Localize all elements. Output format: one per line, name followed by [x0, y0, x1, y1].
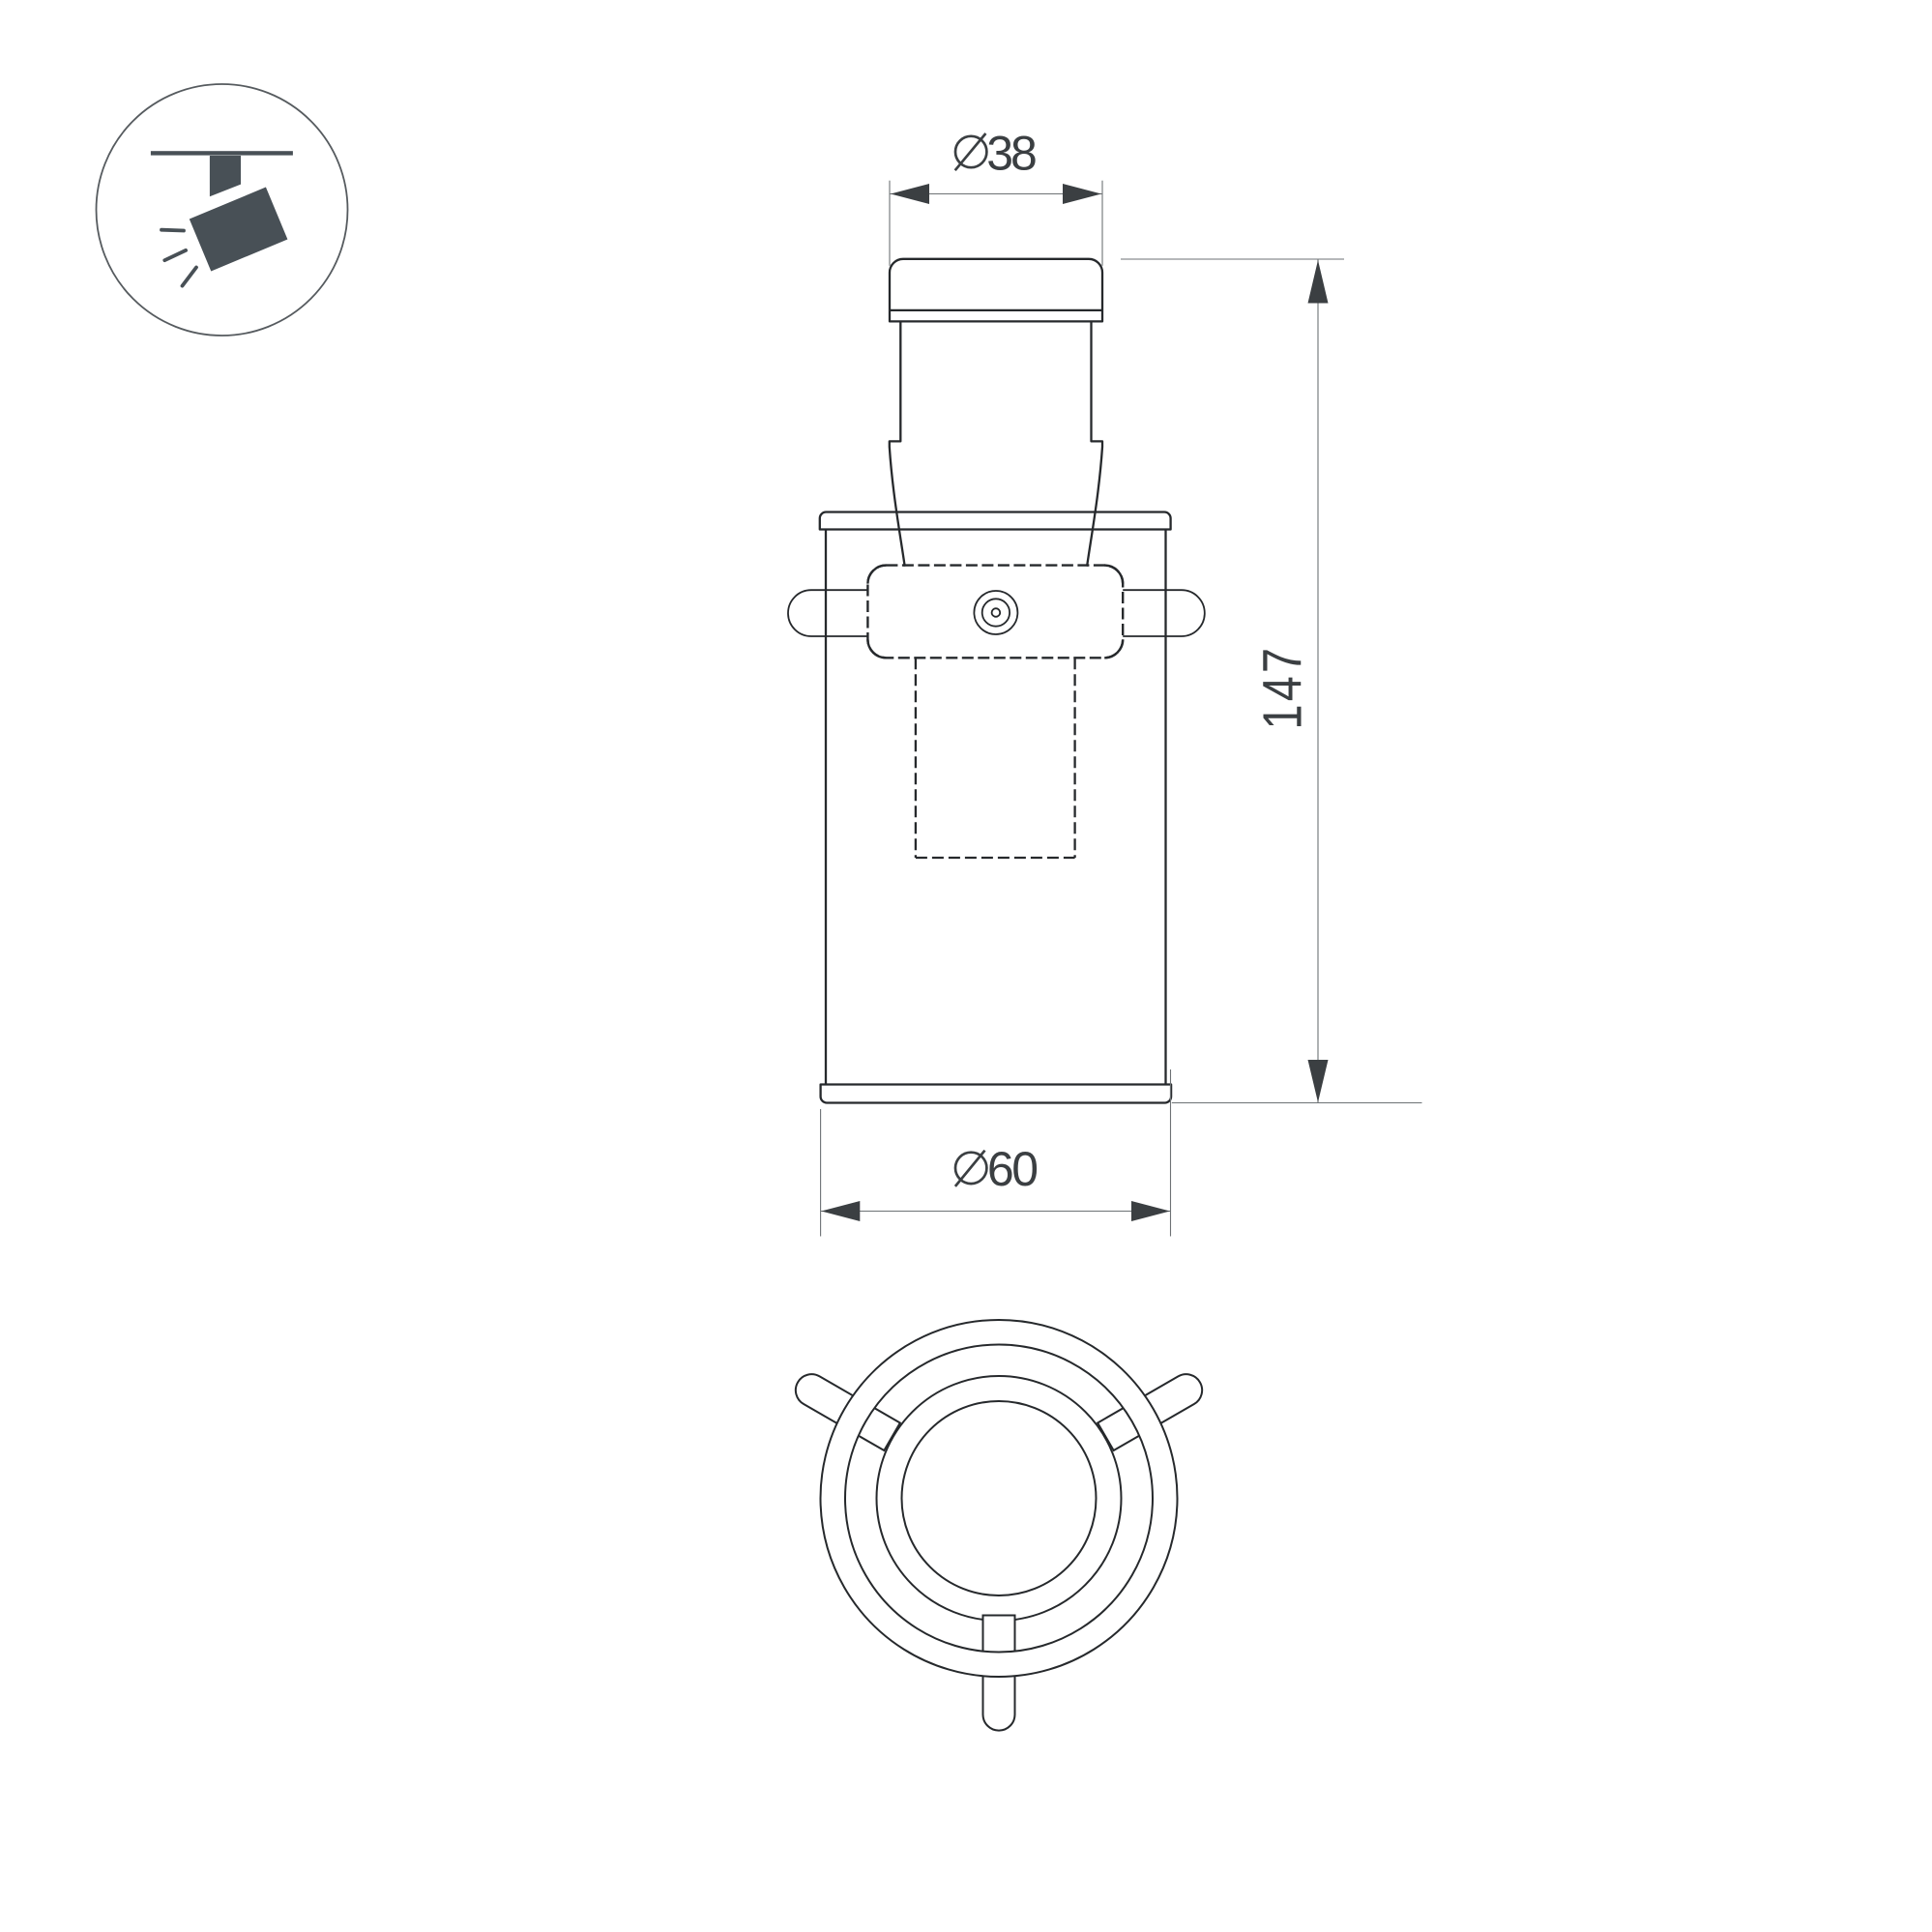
svg-text:60: 60	[987, 1142, 1037, 1196]
svg-text:38: 38	[986, 127, 1036, 181]
svg-text:147: 147	[1252, 645, 1313, 730]
